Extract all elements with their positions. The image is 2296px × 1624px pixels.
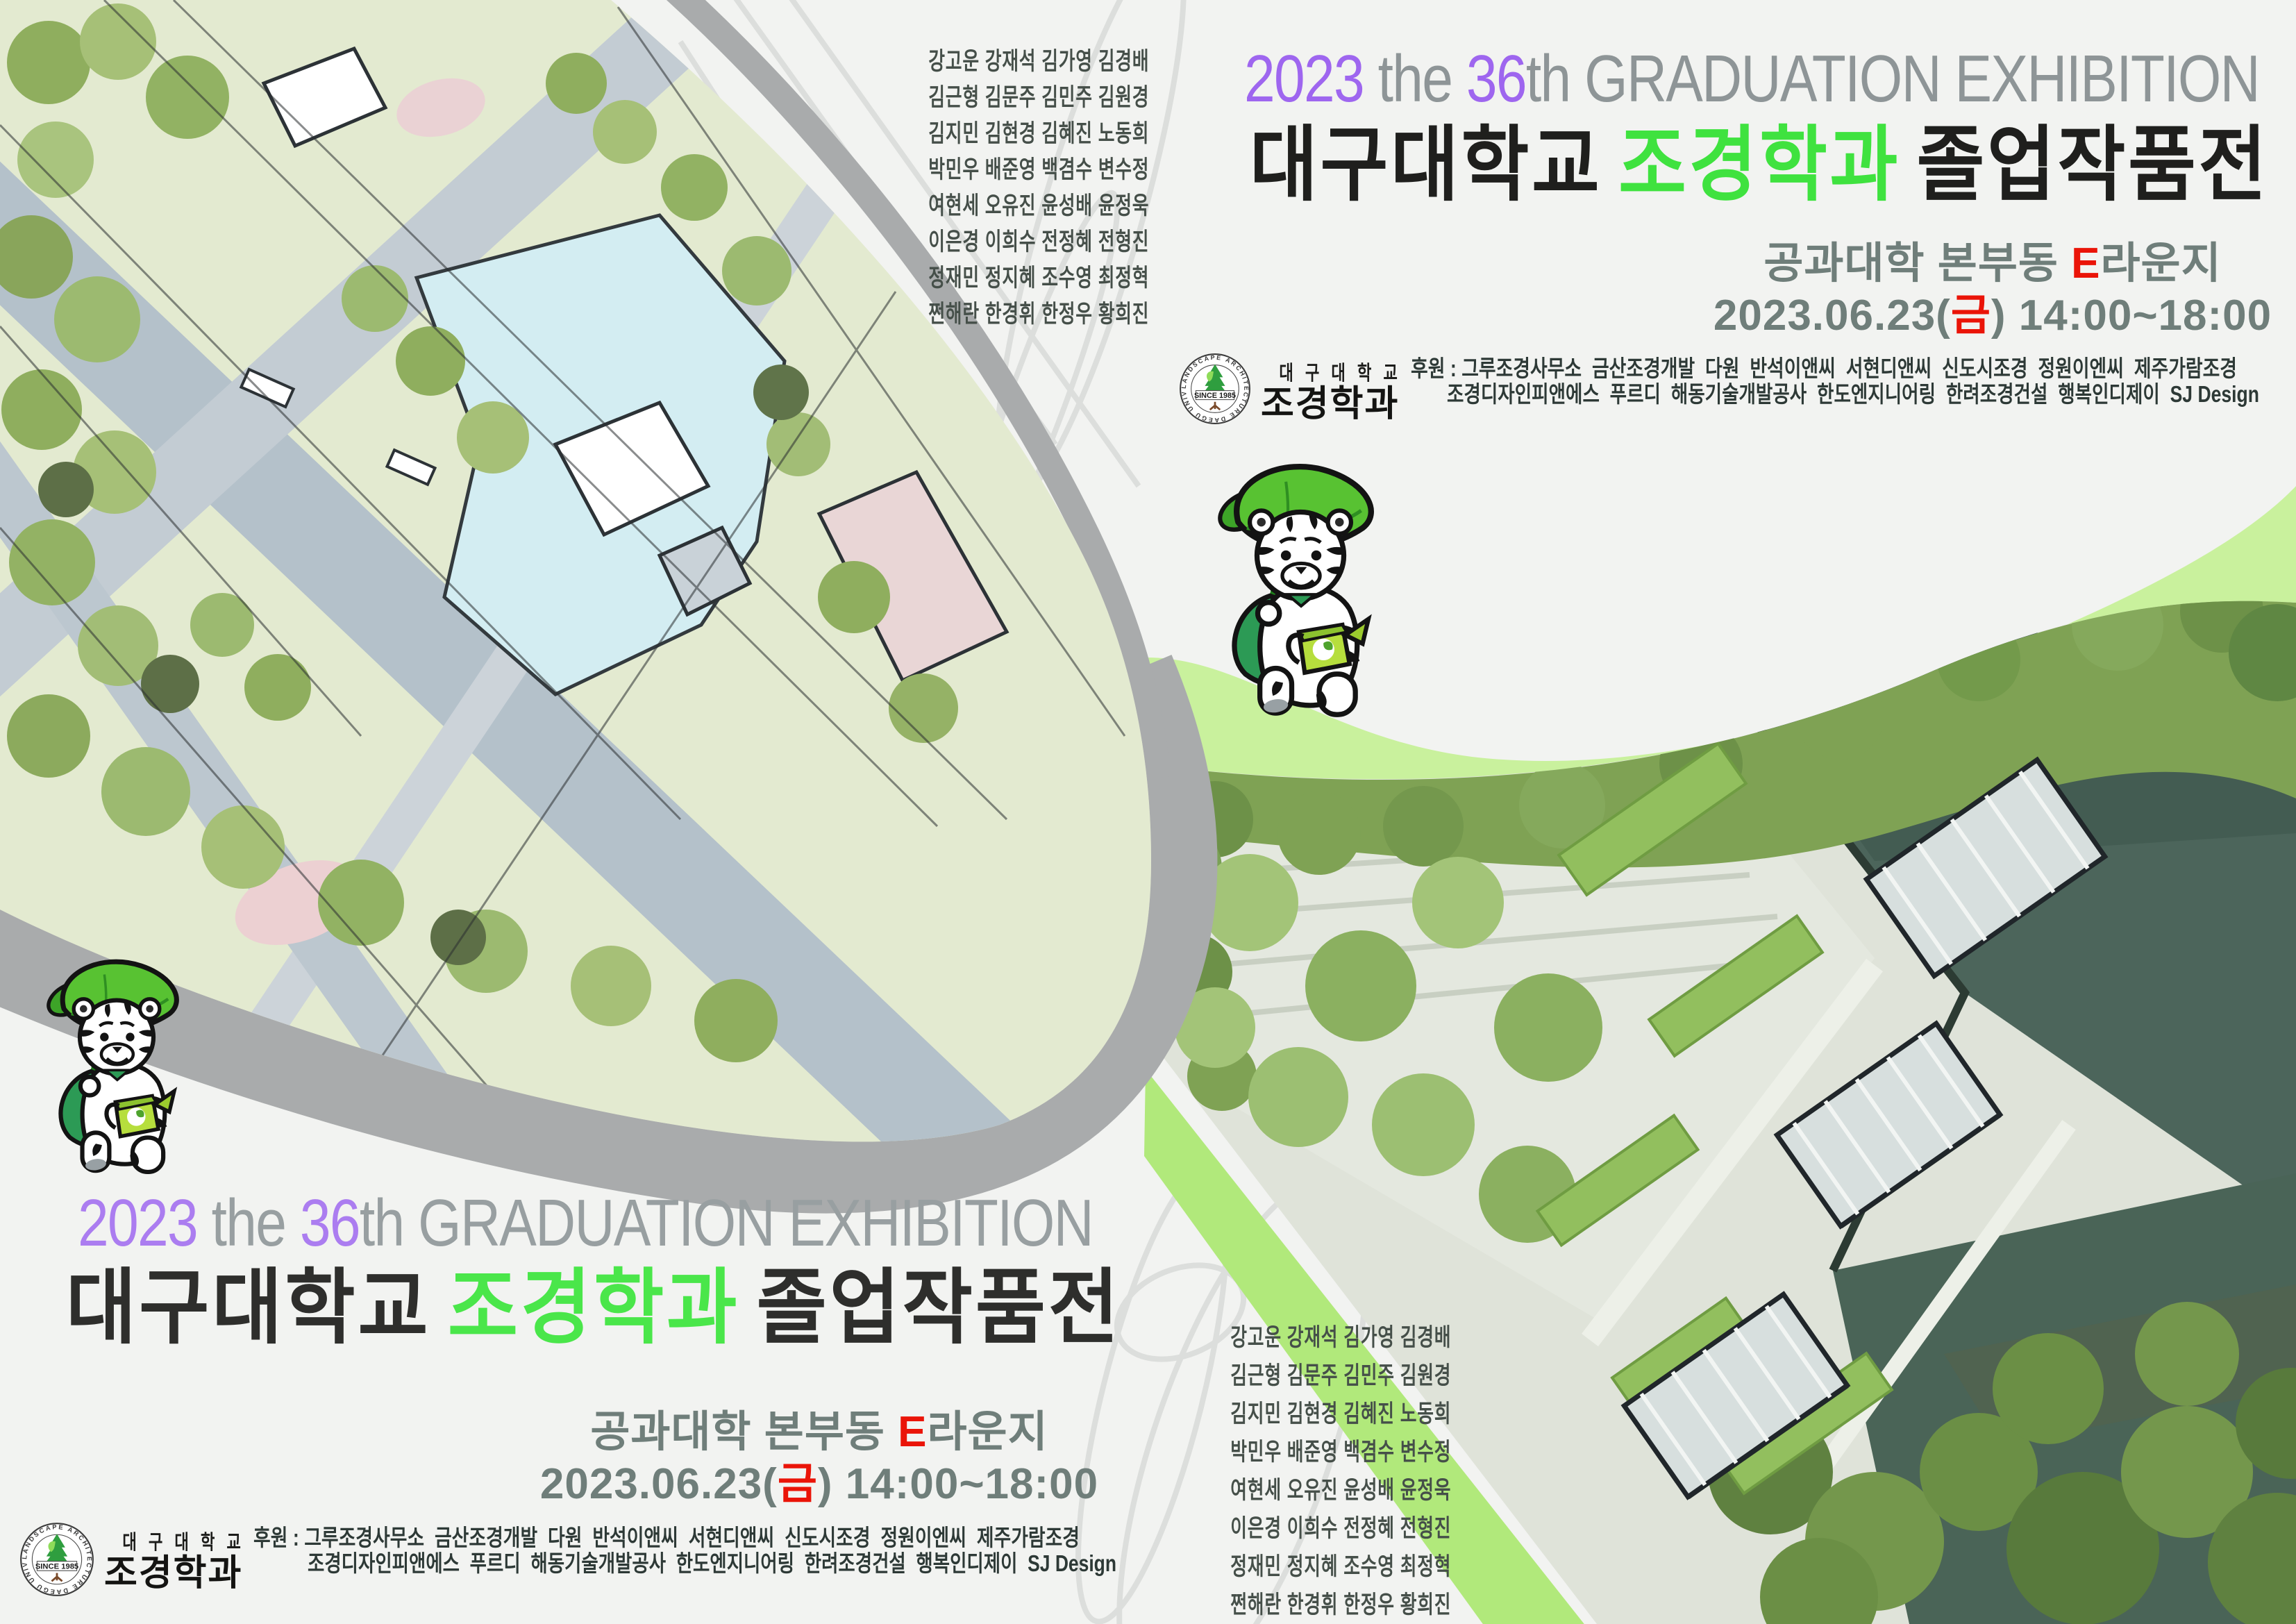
participant-row: 정재민 정지혜 조수영 최정혁 [1191, 1550, 1412, 1589]
date-pre: 2023.06.23( [1713, 292, 1951, 340]
department-emblem-bottom [19, 1522, 94, 1597]
department-name-top: 대 구 대 학 교 조경학과 [1261, 362, 1399, 424]
tiger-mascot-left [43, 950, 190, 1183]
venue-pre: 공과대학 본부동 [590, 1408, 898, 1456]
title-number: 36 [300, 1186, 360, 1260]
title-the: the [212, 1186, 286, 1260]
sponsors-line1: 후원 : 그루조경사무소 금산조경개발 다원 반석이앤씨 서현디앤씨 신도시조경… [1411, 355, 2237, 381]
participant-row: 여현세 오유진 윤성배 윤정욱 [889, 190, 1110, 226]
title-univ: 대구대학교 [1250, 119, 1602, 211]
venue-line-top: 공과대학 본부동 E라운지 [1694, 240, 2291, 288]
venue-line-bottom: 공과대학 본부동 E라운지 [521, 1408, 1118, 1457]
participant-row: 박민우 배준영 백겸수 변수정 [889, 154, 1110, 190]
graduation-exhibition-poster: LANDSCAPE ARCHITECTURE DAEGU UNIVERSITY … [0, 0, 2296, 1624]
title-th: th [360, 1186, 404, 1260]
participant-row: 김근형 김문주 김민주 김원경 [889, 82, 1110, 118]
title-dept: 조경학과 [1618, 119, 1900, 211]
date-line-bottom: 2023.06.23(금) 14:00~18:00 [521, 1460, 1118, 1509]
title-th: th [1526, 42, 1570, 116]
title-number: 36 [1466, 42, 1526, 116]
title-english-bottom: 2023 the 36th GRADUATION EXHIBITION [78, 1187, 1093, 1259]
title-year: 2023 [78, 1186, 197, 1260]
title-expo: 졸업작품전 [1916, 119, 2269, 211]
date-post: ) 14:00~18:00 [818, 1460, 1098, 1508]
tiger-mascot-right [1214, 453, 1387, 728]
venue-e: E [2071, 240, 2100, 287]
participant-row: 김지민 김현경 김혜진 노동희 [1191, 1398, 1412, 1436]
logo-dept-name: 조경학과 [104, 1554, 242, 1593]
sponsors-line2: 조경디자인피앤에스 푸르디 해동기술개발공사 한도엔지니어링 한려조경건설 행복… [308, 1550, 1116, 1576]
title-expo: 졸업작품전 [756, 1262, 1121, 1354]
title-korean-top: 대구대학교조경학과졸업작품전 [1250, 119, 2269, 211]
participant-row: 이은경 이희수 전정혜 전형진 [1191, 1512, 1412, 1550]
logo-dept-name: 조경학과 [1261, 385, 1399, 424]
participant-row: 쩐해란 한경휘 한정우 황희진 [1191, 1589, 1412, 1624]
participant-row: 강고운 강재석 김가영 김경배 [1191, 1321, 1412, 1359]
title-english-top: 2023 the 36th GRADUATION EXHIBITION [1244, 43, 2259, 115]
participant-row: 이은경 이희수 전정혜 전형진 [889, 226, 1110, 262]
participant-row: 김지민 김현경 김혜진 노동희 [889, 118, 1110, 154]
participant-row: 박민우 배준영 백겸수 변수정 [1191, 1436, 1412, 1474]
participant-row: 정재민 정지혜 조수영 최정혁 [889, 262, 1110, 299]
date-day: 금 [778, 1460, 818, 1508]
venue-post: 라운지 [927, 1408, 1048, 1456]
sponsors-line2: 조경디자인피앤에스 푸르디 해동기술개발공사 한도엔지니어링 한려조경건설 행복… [1447, 381, 2259, 407]
participant-row: 김근형 김문주 김민주 김원경 [1191, 1359, 1412, 1398]
sponsors-bottom: 후원 : 그루조경사무소 금산조경개발 다원 반석이앤씨 서현디앤씨 신도시조경… [253, 1525, 1128, 1576]
title-rest: GRADUATION EXHIBITION [418, 1186, 1093, 1260]
participant-row: 여현세 오유진 윤성배 윤정욱 [1191, 1474, 1412, 1512]
title-year: 2023 [1244, 42, 1364, 116]
venue-post: 라운지 [2100, 240, 2221, 287]
department-name-bottom: 대 구 대 학 교 조경학과 [104, 1532, 242, 1593]
title-dept: 조경학과 [448, 1262, 739, 1354]
venue-pre: 공과대학 본부동 [1763, 240, 2071, 287]
logo-univ-name: 대 구 대 학 교 [122, 1532, 244, 1554]
participants-list-bottom: 강고운 강재석 김가영 김경배김근형 김문주 김민주 김원경김지민 김현경 김혜… [1093, 1321, 1510, 1624]
title-rest: GRADUATION EXHIBITION [1584, 42, 2259, 116]
participant-row: 강고운 강재석 김가영 김경배 [889, 46, 1110, 82]
participant-row: 쩐해란 한경휘 한정우 황희진 [889, 299, 1110, 335]
sponsors-top: 후원 : 그루조경사무소 금산조경개발 다원 반석이앤씨 서현디앤씨 신도시조경… [1411, 355, 2272, 407]
participants-list-top: 강고운 강재석 김가영 김경배김근형 김문주 김민주 김원경김지민 김현경 김혜… [791, 46, 1208, 335]
date-pre: 2023.06.23( [540, 1460, 778, 1508]
date-line-top: 2023.06.23(금) 14:00~18:00 [1694, 292, 2291, 340]
logo-univ-name: 대 구 대 학 교 [1279, 362, 1401, 385]
venue-e: E [898, 1408, 927, 1456]
date-day: 금 [1951, 292, 1991, 340]
title-korean-bottom: 대구대학교조경학과졸업작품전 [66, 1262, 1121, 1354]
department-emblem-top [1179, 353, 1251, 425]
title-the: the [1378, 42, 1452, 116]
sponsors-line1: 후원 : 그루조경사무소 금산조경개발 다원 반석이앤씨 서현디앤씨 신도시조경… [253, 1525, 1080, 1550]
title-univ: 대구대학교 [66, 1262, 431, 1354]
date-post: ) 14:00~18:00 [1991, 292, 2272, 340]
